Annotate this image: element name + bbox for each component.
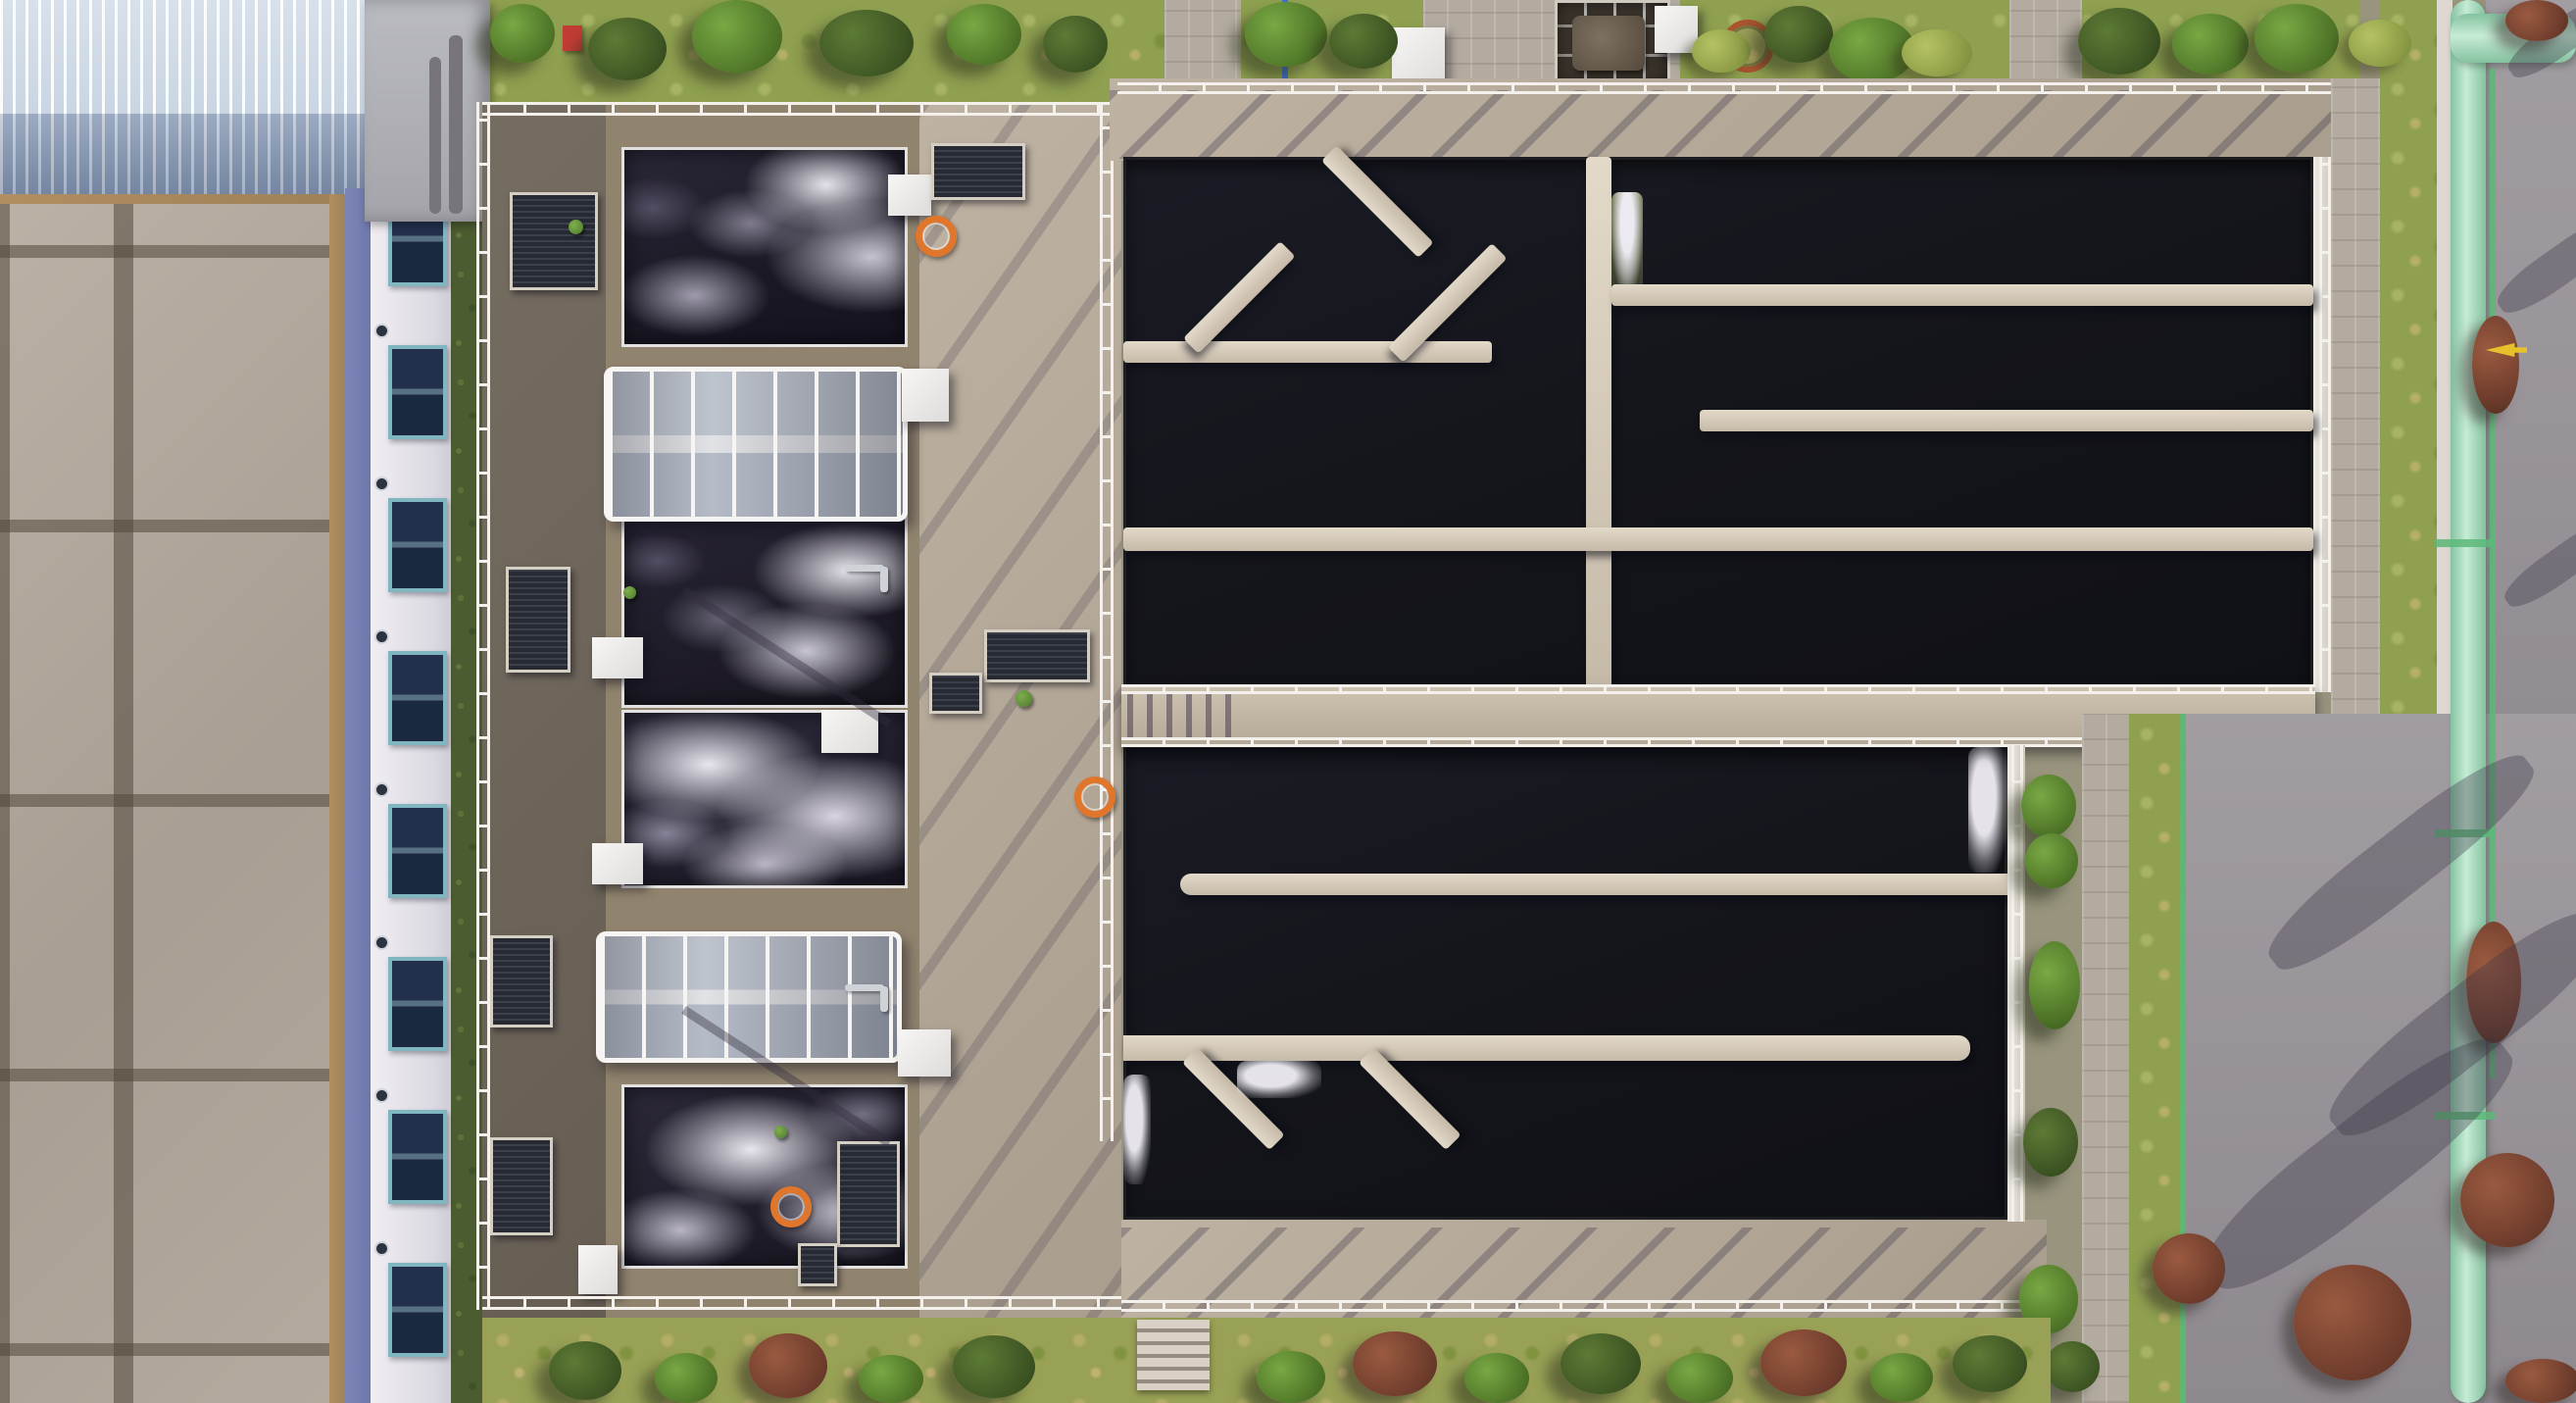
bush bbox=[2172, 14, 2249, 75]
floor-grate bbox=[510, 192, 598, 290]
red-foliage-tree bbox=[2153, 1233, 2225, 1304]
life-ring bbox=[770, 1186, 812, 1228]
bush bbox=[819, 10, 914, 76]
roof-joint-horizontal bbox=[0, 245, 329, 258]
roof-joint-horizontal bbox=[0, 794, 329, 807]
aeration-basin-1 bbox=[621, 147, 908, 347]
foam-patch bbox=[1123, 1075, 1151, 1184]
bush bbox=[1560, 1333, 1641, 1394]
floor-grate bbox=[490, 935, 553, 1027]
equipment-box bbox=[898, 1029, 951, 1077]
equipment-box bbox=[592, 637, 643, 678]
red-bush bbox=[2472, 316, 2519, 414]
pipe-cap bbox=[774, 1126, 787, 1138]
lamp-post bbox=[880, 567, 888, 592]
bush bbox=[2023, 1108, 2078, 1177]
east-paver-path bbox=[2331, 78, 2380, 726]
red-foliage-tree bbox=[2505, 0, 2568, 41]
floor-grate bbox=[984, 629, 1090, 682]
facade-window bbox=[388, 1110, 447, 1204]
red-foliage-tree bbox=[2294, 1265, 2411, 1380]
east-wall-railing bbox=[2319, 157, 2331, 692]
lamp-arm bbox=[845, 565, 884, 572]
paver-path-southeast bbox=[2082, 714, 2131, 1403]
wall-vent bbox=[374, 324, 389, 338]
bush bbox=[1870, 1353, 1933, 1402]
floor-grate bbox=[931, 143, 1025, 200]
roof-joint-horizontal bbox=[0, 1069, 329, 1081]
bush bbox=[1666, 1353, 1733, 1403]
aeration-railing-north bbox=[482, 102, 1121, 116]
walkway-beam bbox=[1611, 284, 2313, 306]
bush bbox=[2021, 775, 2076, 837]
red-foliage-tree bbox=[2460, 1153, 2554, 1247]
pipe-cap bbox=[623, 586, 636, 599]
garden-path bbox=[1164, 0, 1241, 88]
floor-grate bbox=[929, 673, 982, 714]
bush bbox=[2078, 8, 2160, 75]
skylight-canopy-north bbox=[604, 367, 908, 522]
footbridge-railing-north bbox=[1121, 684, 2315, 694]
bush bbox=[1760, 1329, 1847, 1396]
bush bbox=[490, 4, 555, 63]
wall-vent bbox=[374, 782, 389, 797]
pump-machinery bbox=[1572, 16, 1645, 71]
bush bbox=[953, 1335, 1035, 1398]
life-ring bbox=[916, 216, 957, 257]
control-cabinet bbox=[1655, 6, 1698, 53]
bush bbox=[1353, 1331, 1437, 1396]
wall-vent bbox=[374, 1088, 389, 1103]
equipment-box bbox=[592, 843, 643, 884]
bush bbox=[1902, 29, 1972, 76]
wall-vent bbox=[374, 935, 389, 950]
aeration-railing-south bbox=[482, 1296, 1121, 1310]
bush bbox=[2025, 833, 2078, 888]
equipment-box bbox=[902, 369, 949, 422]
wall-vent bbox=[374, 476, 389, 491]
top-deck-railing bbox=[1117, 82, 2354, 94]
equipment-box bbox=[578, 1245, 618, 1294]
bush bbox=[1245, 2, 1327, 67]
facade-window bbox=[388, 957, 447, 1051]
roof-joint-horizontal bbox=[0, 520, 329, 532]
blue-roof-shadow bbox=[0, 114, 365, 194]
rooftop-pipe bbox=[429, 57, 441, 214]
floor-grate bbox=[798, 1243, 837, 1286]
bush bbox=[2029, 941, 2080, 1029]
roof-joint-horizontal bbox=[0, 1343, 329, 1356]
bush bbox=[588, 18, 667, 80]
walkway-beam bbox=[1180, 874, 2007, 895]
facade-window bbox=[388, 498, 447, 592]
rooftop-equipment bbox=[365, 0, 490, 222]
aerial-photo-wastewater-plant: Top-down aerial photograph of a wastewat… bbox=[0, 0, 2576, 1403]
railing-shadow-hatch bbox=[1110, 90, 2360, 159]
garden-stairs bbox=[1137, 1320, 1210, 1390]
foam-patch bbox=[1237, 1061, 1321, 1098]
office-facade bbox=[371, 153, 457, 1403]
red-bin bbox=[563, 25, 582, 51]
bush bbox=[749, 1333, 827, 1398]
red-foliage-tree bbox=[2505, 1359, 2576, 1403]
facade-window bbox=[388, 345, 447, 439]
bush bbox=[2254, 4, 2339, 73]
bush bbox=[1043, 16, 1108, 73]
bush bbox=[549, 1341, 621, 1400]
bush bbox=[1257, 1351, 1325, 1403]
walkway-beam bbox=[1123, 1035, 1970, 1061]
bush bbox=[1692, 29, 1751, 73]
bush bbox=[2349, 20, 2411, 67]
clarifier-basin-south bbox=[1123, 745, 2007, 1220]
facade-window bbox=[388, 804, 447, 898]
bush bbox=[859, 1355, 923, 1403]
bush bbox=[655, 1353, 718, 1403]
floor-grate bbox=[506, 567, 570, 673]
bush bbox=[2045, 1341, 2100, 1392]
rooftop-pipe bbox=[449, 35, 463, 214]
lamp-arm bbox=[845, 984, 884, 991]
stair-shadow bbox=[1127, 694, 1245, 737]
aeration-railing-west bbox=[476, 102, 490, 1310]
lamp-post bbox=[880, 986, 888, 1012]
control-cabinet bbox=[1392, 27, 1445, 86]
worker-figure bbox=[569, 220, 583, 234]
walkway-beam bbox=[1123, 527, 2313, 551]
bush bbox=[1953, 1335, 2027, 1392]
foam-patch bbox=[1968, 747, 2007, 873]
inlet-foam bbox=[1611, 192, 1643, 294]
bush bbox=[1329, 14, 1398, 69]
pipe-support bbox=[2435, 539, 2496, 547]
bush bbox=[692, 0, 782, 73]
walkway-beam bbox=[1123, 341, 1492, 363]
equipment-box bbox=[888, 175, 931, 216]
building-violet-trim bbox=[345, 188, 372, 1403]
walkway-beam bbox=[1700, 410, 2313, 431]
floor-grate bbox=[490, 1137, 553, 1235]
wall-vent bbox=[374, 629, 389, 644]
aeration-basin-2 bbox=[621, 510, 908, 708]
south-basin-railing bbox=[2011, 745, 2023, 1222]
bush bbox=[1464, 1353, 1529, 1403]
bottom-deck-railing bbox=[1121, 1300, 2047, 1312]
aeration-railing-east bbox=[1100, 102, 1114, 1141]
facade-window bbox=[388, 651, 447, 745]
divider-beam bbox=[1586, 157, 1611, 692]
bush bbox=[1764, 6, 1833, 63]
bush bbox=[947, 4, 1021, 65]
floor-grate bbox=[837, 1141, 900, 1247]
facade-window bbox=[388, 1263, 447, 1357]
wall-vent bbox=[374, 1241, 389, 1256]
skylight-canopy-south bbox=[596, 931, 902, 1063]
green-barrel bbox=[1016, 690, 1032, 707]
garden-path bbox=[2009, 0, 2082, 88]
life-ring bbox=[1074, 777, 1115, 818]
